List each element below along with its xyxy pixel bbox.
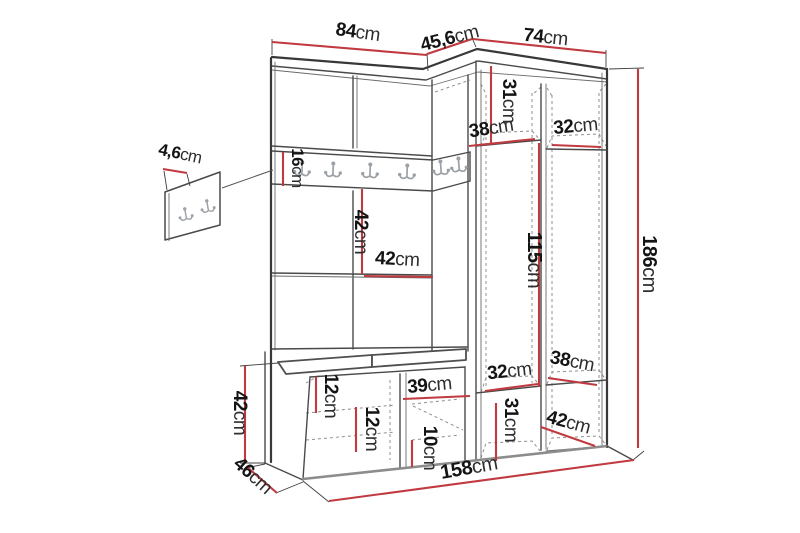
dim-line-4-6	[163, 169, 187, 173]
dim-label-bench-gap-top: 12cm	[320, 374, 341, 418]
coat-hook-icon	[449, 156, 468, 172]
hook-panel-detail	[165, 170, 273, 241]
dim-label-lower-right-height: 31cm	[500, 398, 521, 442]
dim-label-upper-shelf-right: 32cm	[552, 114, 598, 139]
dim-label-upper-shelf-left: 38cm	[468, 115, 515, 143]
diagram-canvas: 84cm 45,6cm 74cm 4,6cm 31cm 38cm 32cm 16…	[0, 0, 800, 533]
dim-label-top-right-width: 74cm	[522, 25, 568, 51]
dim-label-hanging-height: 115cm	[523, 232, 545, 288]
dim-label-lower-shelf-left: 32cm	[486, 359, 532, 385]
detail-connector-line	[222, 170, 273, 188]
coat-hook-icon	[431, 159, 450, 175]
dim-label-bottom-shelf-depth: 42cm	[544, 407, 592, 439]
dim-label-open-width: 42cm	[375, 248, 421, 271]
hook-rail-hooks	[293, 156, 468, 179]
coat-hook-icon	[398, 163, 417, 179]
dim-label-bench-depth: 46cm	[229, 453, 276, 498]
furniture-dimension-diagram: 84cm 45,6cm 74cm 4,6cm 31cm 38cm 32cm 16…	[0, 0, 800, 533]
dimension-labels: 84cm 45,6cm 74cm 4,6cm 31cm 38cm 32cm 16…	[157, 19, 660, 499]
dim-label-lower-shelf-right: 38cm	[548, 347, 596, 376]
coat-hook-icon	[361, 162, 380, 178]
dim-label-top-left-width: 84cm	[334, 19, 381, 46]
bench-cushions	[278, 349, 466, 374]
dim-label-total-height: 186cm	[638, 235, 660, 293]
dim-label-bench-gap-mid: 12cm	[361, 407, 382, 451]
dim-label-open-height: 42cm	[350, 210, 371, 254]
dim-label-bench-inner-width: 39cm	[406, 373, 452, 398]
dim-line-42-horiz	[364, 276, 433, 277]
dim-line-32-top	[552, 145, 601, 147]
dim-label-panel-thickness: 4,6cm	[157, 140, 204, 168]
coat-hook-icon	[324, 161, 343, 177]
dim-label-bench-height: 42cm	[229, 391, 250, 435]
dim-label-rail-height: 16cm	[288, 148, 307, 188]
cushion-left	[278, 355, 372, 374]
cushion-right	[372, 349, 466, 367]
dim-line-84	[272, 42, 427, 55]
dim-label-bench-gap-bottom: 10cm	[419, 426, 440, 470]
